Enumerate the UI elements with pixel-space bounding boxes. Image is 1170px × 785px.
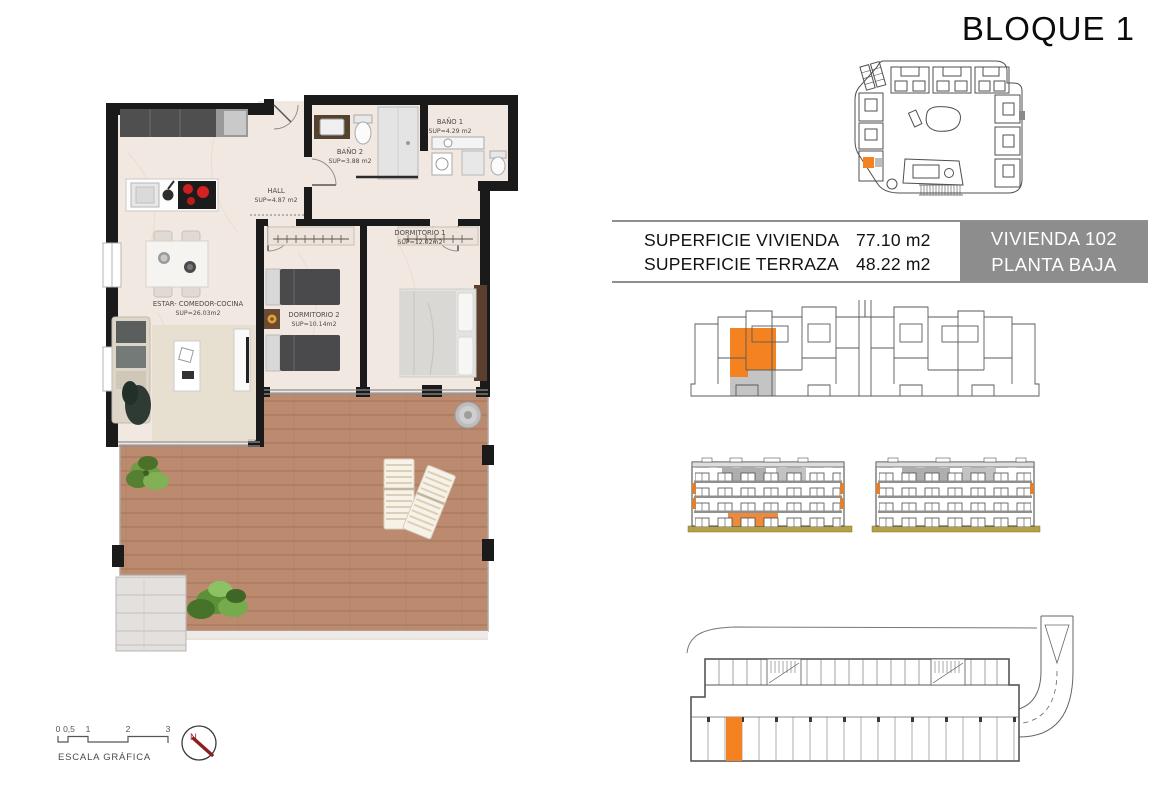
svg-text:SUP=26.03m2: SUP=26.03m2 bbox=[175, 310, 220, 317]
pan-icon bbox=[163, 190, 174, 201]
page-title: BLOQUE 1 bbox=[962, 10, 1135, 48]
highlighted-unit-site bbox=[863, 157, 874, 168]
svg-text:SUP=12.02m2: SUP=12.02m2 bbox=[397, 239, 442, 246]
building-elevations bbox=[686, 450, 1044, 538]
dormitorio2-label: DORMITORIO 2 bbox=[288, 311, 339, 319]
highlighted-unit-key bbox=[730, 328, 776, 370]
superficie-vivienda-label: SUPERFICIE VIVIENDA bbox=[644, 228, 856, 252]
svg-text:3: 3 bbox=[166, 724, 171, 734]
svg-text:2: 2 bbox=[126, 724, 131, 734]
svg-text:0: 0 bbox=[56, 724, 61, 734]
highlighted-terrace-site bbox=[875, 158, 882, 167]
cooktop bbox=[178, 181, 216, 209]
stair-core bbox=[767, 659, 801, 685]
site-boundary-line bbox=[687, 627, 1037, 653]
highlighted-parking-stall bbox=[726, 717, 742, 761]
outdoor-shower bbox=[455, 402, 481, 428]
north-compass: N bbox=[182, 726, 216, 760]
key-plan bbox=[688, 288, 1042, 402]
elevation-right bbox=[872, 458, 1040, 532]
site-plan bbox=[843, 53, 1051, 205]
superficie-vivienda-value: 77.10 m2 bbox=[856, 228, 931, 252]
dormitorio1-label: DORMITORIO 1 bbox=[394, 229, 445, 237]
stair-core bbox=[931, 659, 965, 685]
scale-bar-group: 0 0,5 1 2 3 ESCALA GRÁFICA N bbox=[40, 716, 240, 780]
svg-text:SUP=3.88 m2: SUP=3.88 m2 bbox=[328, 158, 371, 165]
scale-ticks: 0 0,5 1 2 3 bbox=[56, 724, 171, 734]
svg-text:1: 1 bbox=[86, 724, 91, 734]
unit-number: VIVIENDA 102 bbox=[960, 226, 1148, 252]
unit-id-box: VIVIENDA 102 PLANTA BAJA bbox=[960, 222, 1148, 281]
terrace-steps bbox=[116, 577, 186, 651]
bano1-label: BAÑO 1 bbox=[437, 117, 463, 126]
svg-text:0,5: 0,5 bbox=[63, 724, 75, 734]
svg-text:SUP=10.14m2: SUP=10.14m2 bbox=[291, 321, 336, 328]
scale-bar bbox=[58, 736, 168, 743]
svg-text:SUP=4.29 m2: SUP=4.29 m2 bbox=[428, 128, 471, 135]
living-room bbox=[112, 317, 256, 441]
estar-label: ESTAR- COMEDOR-COCINA bbox=[153, 300, 244, 308]
superficie-terraza-label: SUPERFICIE TERRAZA bbox=[644, 252, 856, 276]
unit-floor: PLANTA BAJA bbox=[960, 252, 1148, 278]
coffee-table bbox=[174, 341, 200, 391]
bano2-label: BAÑO 2 bbox=[337, 147, 363, 156]
hall-label: HALL bbox=[267, 187, 285, 195]
garage-structure bbox=[691, 659, 1019, 761]
plan-sheet: BLOQUE 1 bbox=[0, 0, 1170, 785]
apartment-floor-plan: HALL SUP=4.87 m2 BAÑO 2 SUP=3.88 m2 BAÑO… bbox=[98, 93, 523, 658]
garage-plan bbox=[683, 613, 1167, 778]
superficie-terraza-value: 48.22 m2 bbox=[856, 252, 931, 276]
dining-set bbox=[146, 231, 208, 297]
surface-rows: SUPERFICIE VIVIENDA 77.10 m2 SUPERFICIE … bbox=[612, 222, 931, 281]
svg-text:SUP=4.87 m2: SUP=4.87 m2 bbox=[254, 197, 297, 204]
scale-label: ESCALA GRÁFICA bbox=[58, 752, 151, 763]
surface-info-table: SUPERFICIE VIVIENDA 77.10 m2 SUPERFICIE … bbox=[612, 220, 1148, 283]
tv-icon bbox=[246, 337, 249, 383]
elevation-left bbox=[688, 458, 852, 532]
